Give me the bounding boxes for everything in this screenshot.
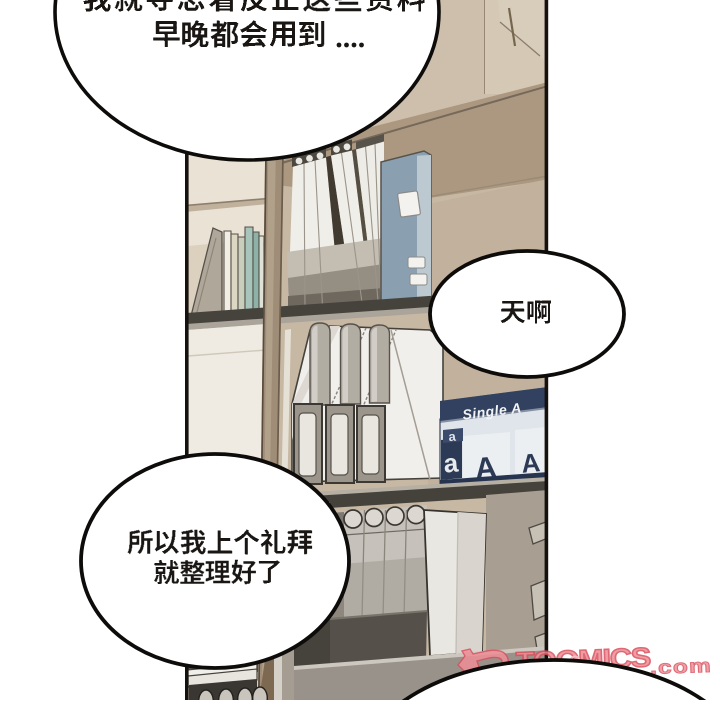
- svg-text:.com: .com: [650, 656, 713, 679]
